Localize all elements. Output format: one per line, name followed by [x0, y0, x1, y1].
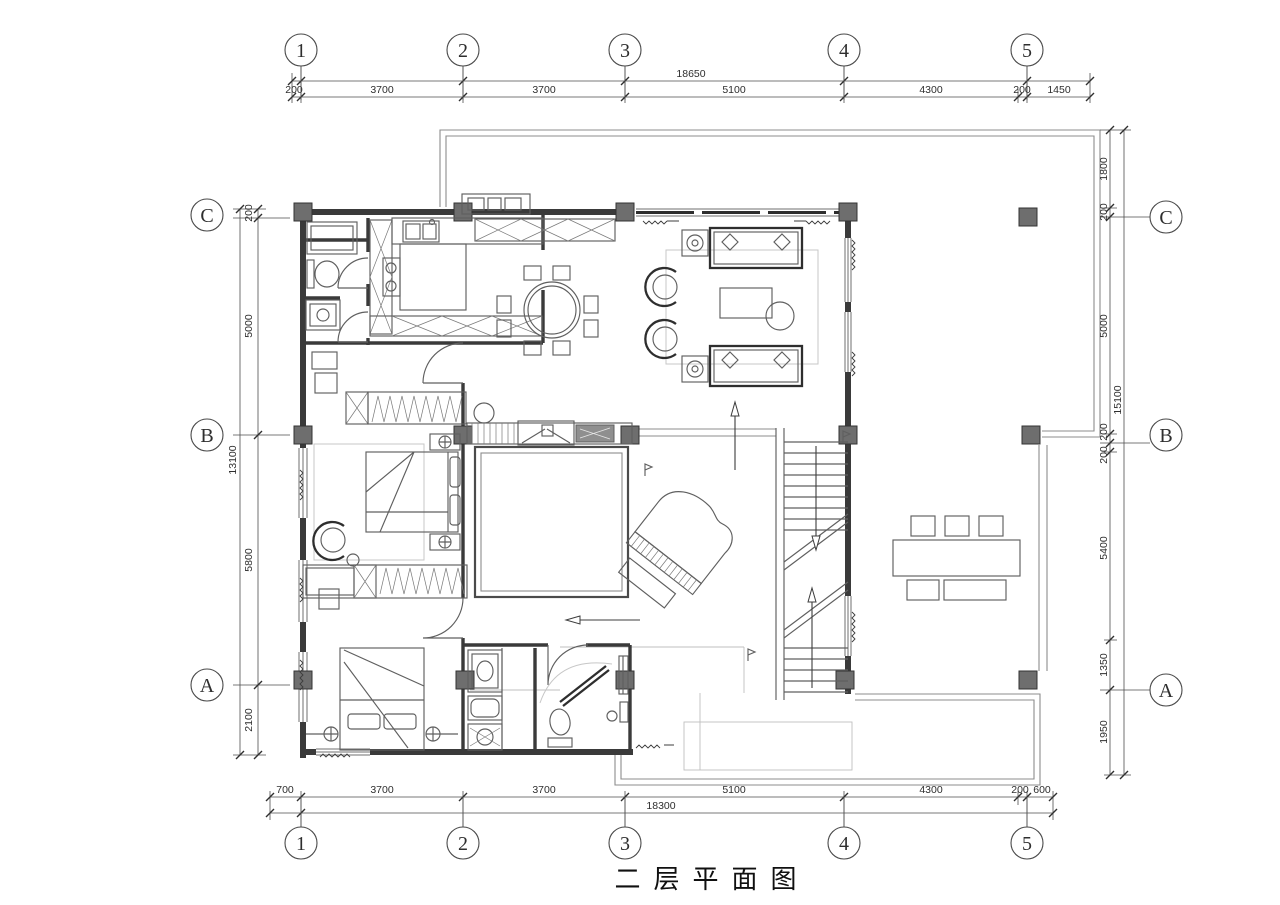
- dim-chain-right: 1800 200 5000 200 200 5400 1350 1950 151…: [1098, 126, 1150, 779]
- bed-master: [366, 452, 458, 532]
- grid-bubble-label: 5: [1022, 40, 1032, 62]
- grid-bubble-label: 4: [839, 833, 849, 855]
- void-opening: [475, 447, 628, 597]
- dim-label: 18300: [646, 800, 675, 812]
- dim-chain-left: 200 5000 5800 2100 13100: [227, 204, 290, 759]
- dim-label: 200: [1098, 446, 1110, 464]
- side-table-bottom: [682, 356, 708, 382]
- dim-label: 4300: [919, 84, 943, 96]
- dim-chain-top: 18650 200 3700 3700 5100 4300 200 1450: [285, 66, 1094, 103]
- side-table-top: [682, 230, 708, 256]
- grid-bubble-label: 3: [620, 833, 630, 855]
- armchair-2: [653, 327, 677, 351]
- toilet-tank: [307, 260, 314, 288]
- dim-label: 15100: [1112, 385, 1124, 414]
- grid-bubble-label: 1: [296, 833, 306, 855]
- dim-label: 600: [1033, 784, 1051, 796]
- sofa-bottom: [710, 346, 802, 386]
- armchair-1: [653, 275, 677, 299]
- grid-bubble-label: 1: [296, 40, 306, 62]
- dim-label: 18650: [676, 68, 705, 80]
- dim-label: 5100: [722, 784, 746, 796]
- dim-label: 1800: [1098, 157, 1110, 181]
- living-room: [474, 228, 818, 423]
- dim-label: 2100: [243, 708, 255, 732]
- bathroom-top-left: [306, 222, 357, 330]
- dim-label: 13100: [227, 445, 239, 474]
- floorplan-page: 18650 200 3700 3700 5100 4300 200 1450 7…: [0, 0, 1280, 905]
- dim-label: 3700: [370, 784, 394, 796]
- sofa-top: [710, 228, 802, 268]
- grid-bubble-label: B: [1159, 425, 1172, 447]
- columns: [294, 203, 1040, 689]
- grid-bubble-label: B: [200, 425, 213, 447]
- grid-bubble-label: 2: [458, 833, 468, 855]
- grid-bubble-label: C: [200, 205, 213, 227]
- shower-glass: [560, 666, 609, 706]
- stool: [319, 589, 339, 609]
- tub: [468, 696, 502, 720]
- bedroom-2: [306, 648, 458, 750]
- dim-label: 3700: [532, 784, 556, 796]
- toilet-tank-2: [548, 738, 572, 747]
- dim-label: 200: [1098, 423, 1110, 441]
- armchair: [321, 528, 345, 552]
- grid-bubbles-right: C B A: [1150, 201, 1182, 706]
- terrace-dining: [893, 516, 1020, 600]
- dim-label: 4300: [919, 784, 943, 796]
- kitchen-island: [400, 244, 466, 310]
- dim-label: 3700: [532, 84, 556, 96]
- floorplan-canvas: 18650 200 3700 3700 5100 4300 200 1450 7…: [0, 0, 1280, 905]
- toilet-bowl-2: [548, 707, 572, 736]
- grid-bubble-label: A: [1159, 680, 1174, 702]
- dim-label: 700: [276, 784, 294, 796]
- dim-label: 200: [243, 204, 255, 222]
- grid-bubble-label: 3: [620, 40, 630, 62]
- grid-bubble-label: A: [200, 675, 215, 697]
- outdoor-table: [893, 540, 1020, 576]
- dim-label: 5000: [1098, 314, 1110, 338]
- dim-label: 1450: [1047, 84, 1071, 96]
- grid-bubbles-left: C B A: [191, 199, 223, 701]
- toilet-bowl: [315, 261, 339, 287]
- bathroom-2: [540, 656, 628, 747]
- master-bedroom: [312, 352, 466, 566]
- utility-strip: [468, 650, 502, 750]
- rug: [314, 444, 424, 560]
- dim-label: 5000: [243, 314, 255, 338]
- grid-bubble-label: 2: [458, 40, 468, 62]
- dining-table: [524, 282, 580, 338]
- dim-label: 200: [1011, 784, 1029, 796]
- dim-label: 200: [1098, 203, 1110, 221]
- interior-walls: [300, 212, 776, 752]
- dim-label: 5800: [243, 548, 255, 572]
- dim-chain-bottom: 700 3700 3700 5100 4300 200 600 18300: [266, 784, 1057, 827]
- drawing-title: 二层平面图: [614, 864, 809, 894]
- wardrobe-band: [303, 565, 467, 609]
- basin: [317, 309, 329, 321]
- dim-label: 5400: [1098, 536, 1110, 560]
- grid-bubble-label: 4: [839, 40, 849, 62]
- dim-label: 200: [1013, 84, 1031, 96]
- desk: [312, 352, 337, 369]
- grand-piano: [609, 480, 742, 617]
- round-side-table: [474, 403, 494, 423]
- dim-label: 1950: [1098, 720, 1110, 744]
- fireplace-wall: [467, 421, 632, 445]
- dim-label: 3700: [370, 84, 394, 96]
- dim-label: 5100: [722, 84, 746, 96]
- dim-label: 200: [285, 84, 303, 96]
- bed-2: [340, 648, 424, 750]
- grid-bubble-label: 5: [1022, 833, 1032, 855]
- dim-label: 1350: [1098, 653, 1110, 677]
- grid-bubble-label: C: [1159, 207, 1172, 229]
- kitchen: [370, 218, 543, 336]
- coffee-table: [720, 288, 772, 318]
